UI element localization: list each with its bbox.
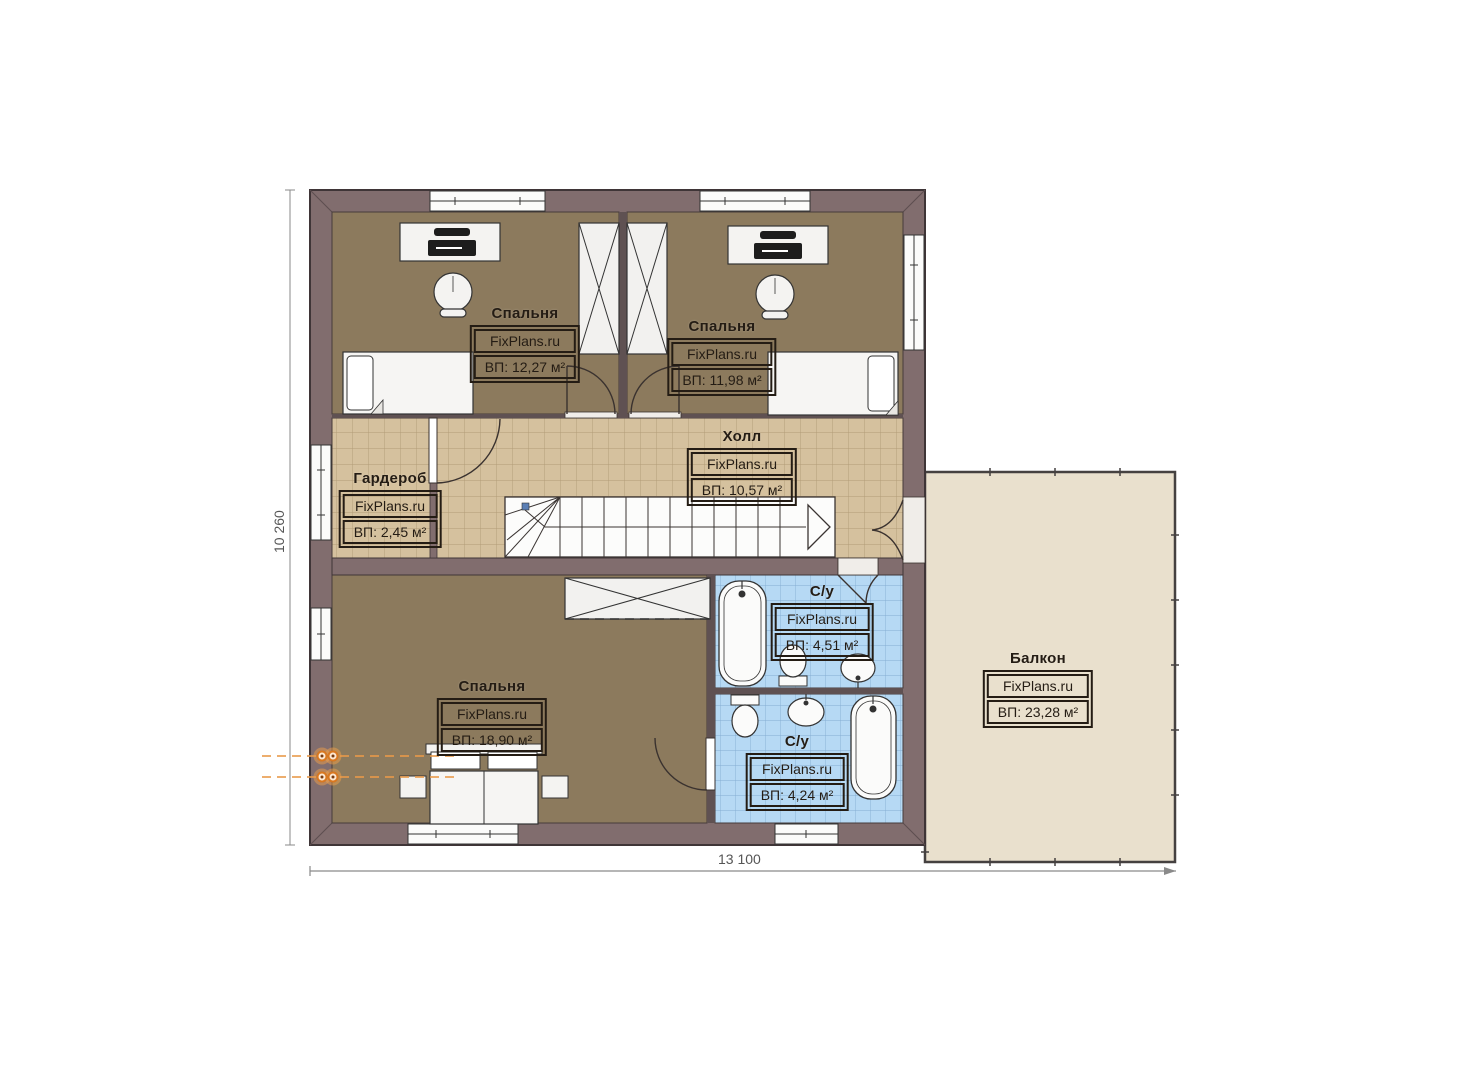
- room-label-balcony: Балкон FixPlans.ru ВП: 23,28 м²: [983, 650, 1093, 728]
- room-info-box: FixPlans.ru ВП: 4,51 м²: [771, 603, 874, 661]
- window-right-bedroom: [904, 235, 924, 350]
- watermark-text: FixPlans.ru: [775, 607, 870, 631]
- window-top-1: [430, 191, 545, 211]
- wardrobe-bottom-bedroom: [565, 578, 710, 619]
- room-info-box: FixPlans.ru ВП: 4,24 м²: [746, 753, 849, 811]
- watermark-text: FixPlans.ru: [987, 674, 1089, 698]
- watermark-text: FixPlans.ru: [343, 494, 438, 518]
- room-name: Спальня: [470, 305, 580, 322]
- watermark-text: FixPlans.ru: [691, 452, 793, 476]
- window-top-2: [700, 191, 810, 211]
- window-left-bedroom: [311, 608, 331, 660]
- floor-plan-page: 10 260 13 100 Спальня FixPlans.ru ВП: 12…: [0, 0, 1473, 1080]
- room-area: ВП: 18,90 м²: [441, 728, 543, 752]
- room-label-wardrobe: Гардероб FixPlans.ru ВП: 2,45 м²: [339, 470, 442, 548]
- computer-icon: [754, 231, 802, 259]
- dimension-width-label: 13 100: [718, 851, 761, 867]
- room-info-box: FixPlans.ru ВП: 23,28 м²: [983, 670, 1093, 728]
- room-area: ВП: 4,51 м²: [775, 633, 870, 657]
- room-area: ВП: 2,45 м²: [343, 520, 438, 544]
- single-bed: [343, 352, 473, 414]
- room-name: Спальня: [667, 318, 776, 335]
- room-label-bedroom-top-left: Спальня FixPlans.ru ВП: 12,27 м²: [470, 305, 580, 383]
- room-area: ВП: 4,24 м²: [750, 783, 845, 807]
- bathtub: [719, 581, 766, 686]
- room-area: ВП: 11,98 м²: [671, 368, 772, 392]
- room-name: Спальня: [437, 678, 547, 695]
- single-bed: [768, 352, 898, 415]
- room-label-bedroom-bottom: Спальня FixPlans.ru ВП: 18,90 м²: [437, 678, 547, 756]
- watermark-text: FixPlans.ru: [474, 329, 576, 353]
- bathtub: [851, 696, 896, 799]
- room-area: ВП: 12,27 м²: [474, 355, 576, 379]
- room-info-box: FixPlans.ru ВП: 11,98 м²: [667, 338, 776, 396]
- room-info-box: FixPlans.ru ВП: 18,90 м²: [437, 698, 547, 756]
- closet-top-right: [627, 223, 667, 354]
- room-name: С/у: [771, 583, 874, 600]
- room-label-bathroom-top: С/у FixPlans.ru ВП: 4,51 м²: [771, 583, 874, 661]
- room-info-box: FixPlans.ru ВП: 10,57 м²: [687, 448, 797, 506]
- room-info-box: FixPlans.ru ВП: 12,27 м²: [470, 325, 580, 383]
- room-label-bathroom-bottom: С/у FixPlans.ru ВП: 4,24 м²: [746, 733, 849, 811]
- radiator-icon: [315, 749, 340, 763]
- window-bottom-2: [775, 824, 838, 844]
- window-left-wardrobe: [311, 445, 331, 540]
- watermark-text: FixPlans.ru: [750, 757, 845, 781]
- toilet: [731, 695, 759, 737]
- staircase: [505, 497, 835, 557]
- watermark-text: FixPlans.ru: [441, 702, 543, 726]
- floor-plan-drawing: 10 260 13 100: [0, 0, 1473, 1080]
- room-info-box: FixPlans.ru ВП: 2,45 м²: [339, 490, 442, 548]
- radiator-icon: [315, 770, 340, 784]
- room-label-bedroom-top-right: Спальня FixPlans.ru ВП: 11,98 м²: [667, 318, 776, 396]
- room-area: ВП: 10,57 м²: [691, 478, 793, 502]
- computer-icon: [428, 228, 476, 256]
- stair-start-marker: [522, 503, 529, 510]
- nightstand-left: [400, 776, 426, 798]
- room-name: Гардероб: [339, 470, 442, 487]
- window-bottom-1: [408, 824, 518, 844]
- watermark-text: FixPlans.ru: [671, 342, 772, 366]
- nightstand-right: [542, 776, 568, 798]
- room-name: Балкон: [983, 650, 1093, 667]
- room-name: С/у: [746, 733, 849, 750]
- room-label-hall: Холл FixPlans.ru ВП: 10,57 м²: [687, 428, 797, 506]
- room-area: ВП: 23,28 м²: [987, 700, 1089, 724]
- dimension-height-label: 10 260: [271, 510, 287, 553]
- closet-top-left: [579, 223, 619, 354]
- room-name: Холл: [687, 428, 797, 445]
